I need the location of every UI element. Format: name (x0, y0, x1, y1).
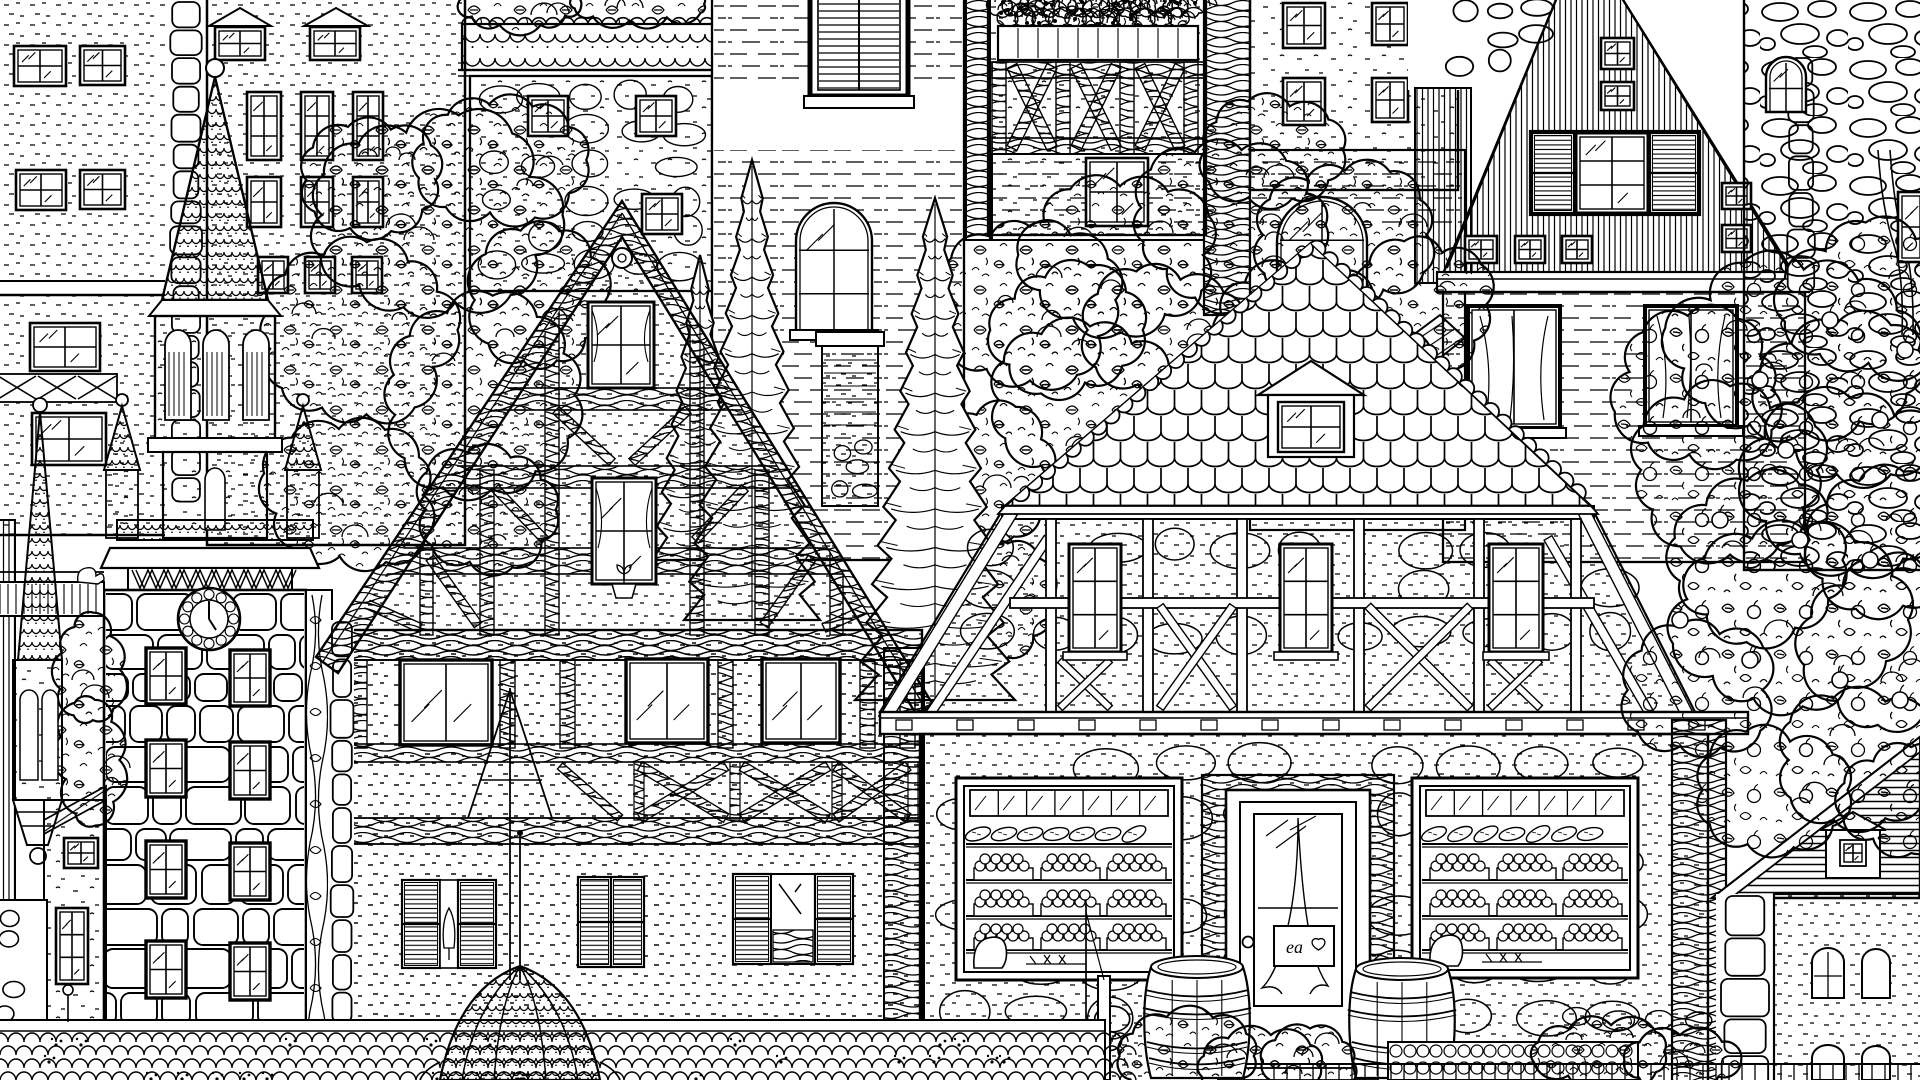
svg-text:ea: ea (1286, 937, 1303, 957)
